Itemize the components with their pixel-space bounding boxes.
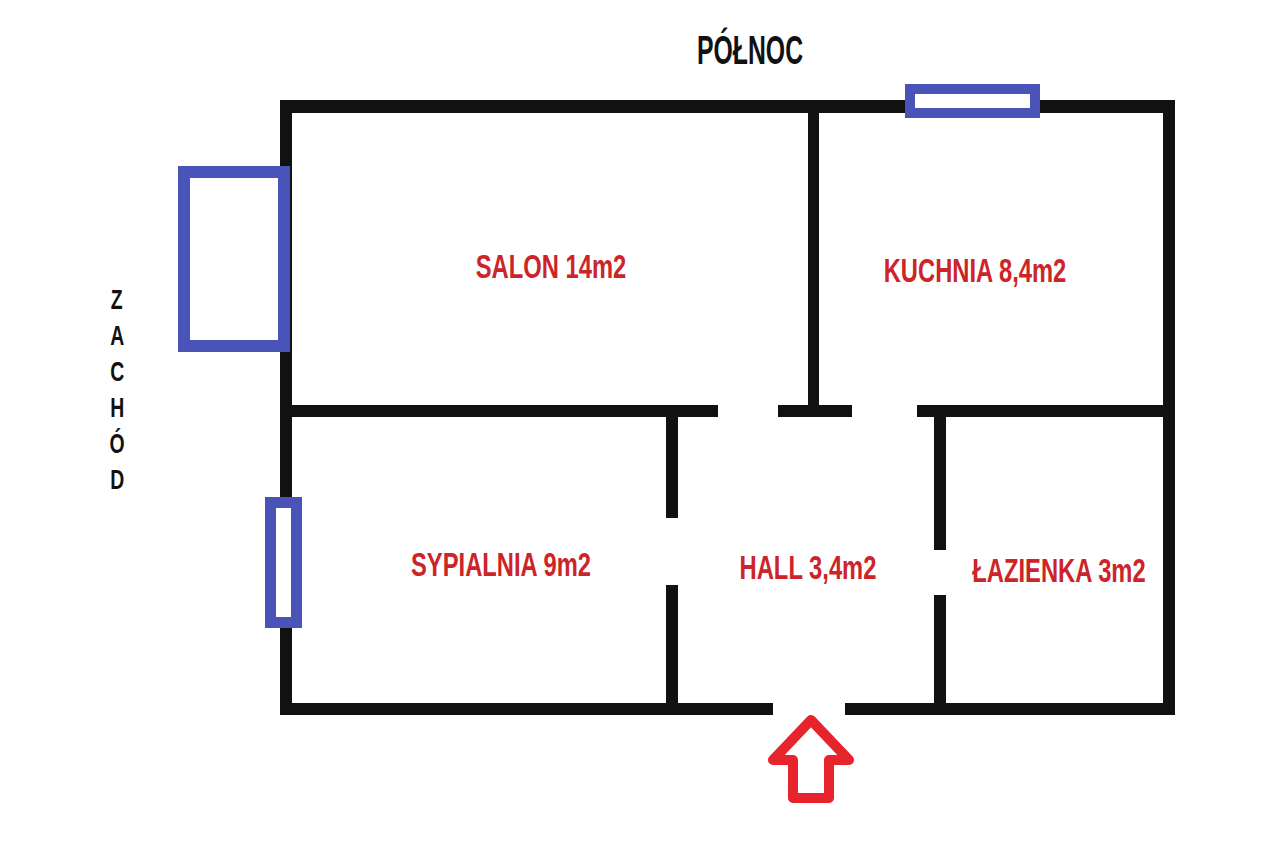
- room-label-sypialnia: SYPIALNIA 9m2: [411, 546, 591, 584]
- wall-hall-lazienka-lower: [934, 595, 946, 715]
- wall-mid-horizontal-left: [280, 405, 718, 417]
- compass-west-letter: Z: [111, 282, 123, 318]
- wall-salon-kuchnia: [808, 106, 819, 411]
- compass-west-letter: C: [110, 354, 124, 390]
- room-label-salon: SALON 14m2: [476, 248, 627, 286]
- wall-north-outer: [280, 100, 1175, 113]
- compass-west-label: Z A C H Ó D: [106, 282, 127, 498]
- window-west-small: [265, 497, 302, 628]
- wall-south-outer-right: [845, 703, 1175, 715]
- room-label-kuchnia: KUCHNIA 8,4m2: [884, 252, 1067, 290]
- compass-west-letter: Ó: [109, 426, 124, 462]
- room-label-hall: HALL 3,4m2: [740, 549, 877, 587]
- window-north: [905, 84, 1040, 118]
- entrance-up-arrow-icon: [765, 714, 857, 804]
- compass-north-label: PÓŁNOC: [697, 28, 803, 73]
- window-west-large: [178, 166, 290, 352]
- compass-west-letter: H: [110, 390, 124, 426]
- wall-east-outer: [1163, 100, 1175, 715]
- wall-sypialnia-hall-upper: [666, 405, 678, 518]
- room-label-lazienka: ŁAZIENKA 3m2: [972, 552, 1145, 590]
- wall-salon-kuchnia-foot: [778, 405, 852, 417]
- compass-west-letter: A: [110, 318, 124, 354]
- floor-plan-canvas: PÓŁNOC Z A C H Ó D SALON 14m2 KUCHNIA 8,…: [0, 0, 1280, 853]
- wall-south-outer-left: [280, 703, 773, 715]
- wall-mid-horizontal-right: [917, 405, 1163, 417]
- wall-sypialnia-hall-lower: [666, 585, 678, 715]
- wall-hall-lazienka-upper: [934, 405, 946, 550]
- compass-west-letter: D: [110, 462, 124, 498]
